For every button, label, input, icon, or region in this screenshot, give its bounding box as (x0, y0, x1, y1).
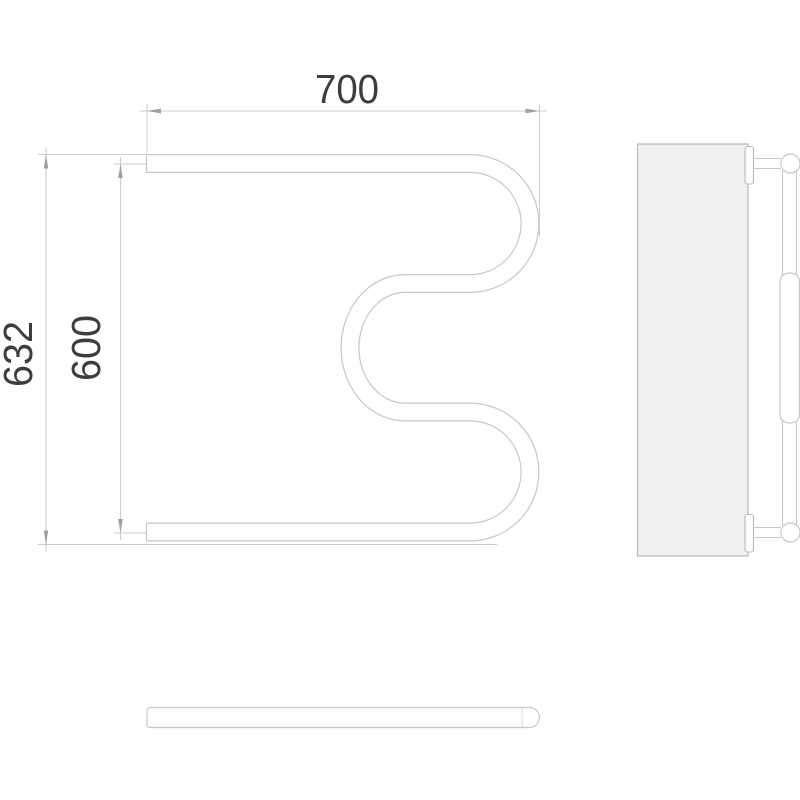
tube-section-bottom (781, 523, 800, 542)
technical-drawing: 700 632 600 (0, 0, 800, 800)
towel-rail-tube-outline (147, 164, 531, 533)
wall-panel (638, 144, 749, 556)
dimension-center-height-label: 600 (63, 315, 109, 381)
tube-profile-bulge (780, 273, 800, 423)
dimension-width-label: 700 (315, 66, 379, 112)
mounting-bracket-bottom (745, 515, 754, 553)
tube-top-outline (147, 708, 540, 728)
front-view (147, 154, 531, 542)
arrowhead-top (118, 164, 123, 178)
arrowhead-left (147, 109, 161, 114)
dimension-overall-height-label: 632 (0, 321, 41, 387)
arrowhead-bottom (118, 519, 123, 533)
mounting-bracket-top (745, 147, 754, 185)
arrowhead-bottom (44, 531, 49, 545)
arrowhead-top (44, 155, 49, 169)
side-view (638, 144, 800, 556)
dimension-center-height: 600 (63, 157, 146, 540)
arrowhead-right (526, 109, 540, 114)
connector-stub-bottom (754, 528, 782, 538)
connector-stub-top (754, 159, 782, 169)
towel-rail-tube-body (147, 164, 531, 533)
dimension-width: 700 (140, 66, 547, 236)
top-view (147, 708, 540, 728)
tube-section-top (781, 154, 800, 173)
